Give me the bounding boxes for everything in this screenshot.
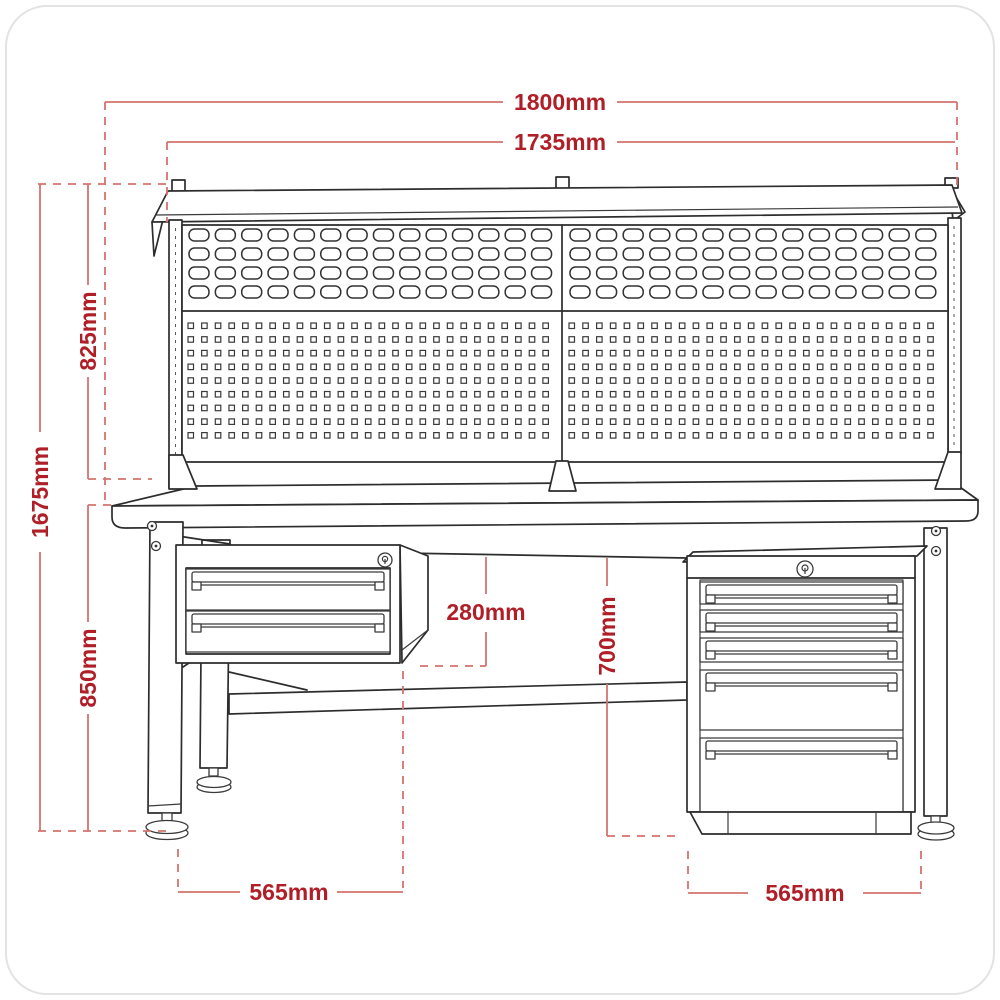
dim-overall-width-label: 1800mm — [514, 89, 606, 115]
pegboard-grid-left — [188, 323, 548, 438]
back-panels — [182, 225, 948, 462]
right-leg — [918, 528, 954, 840]
cabinet-drawers — [700, 582, 903, 812]
diagram-canvas: 1800mm 1735mm 1675mm — [0, 0, 1000, 1000]
dim-suspended-unit-height: 280mm — [420, 557, 526, 666]
lock-icon — [797, 561, 813, 577]
worktop — [112, 480, 978, 528]
dim-cabinet-width-label: 565mm — [765, 880, 844, 906]
dim-back-panel-height: 825mm — [75, 184, 152, 479]
dim-suspended-unit-height-label: 280mm — [446, 599, 525, 625]
pegboard-grid-right — [569, 323, 933, 438]
dim-cabinet-width: 565mm — [688, 851, 921, 906]
suspended-drawer-unit — [176, 545, 428, 663]
dim-overall-height: 1675mm — [27, 184, 53, 831]
suspended-unit-drawers — [186, 569, 390, 652]
left-upright-post — [169, 220, 182, 488]
dim-worktop-height: 850mm — [75, 505, 112, 831]
lower-stretcher-rail — [229, 672, 687, 714]
adjustable-foot — [918, 816, 954, 840]
dim-underbench-clearance-label: 700mm — [594, 596, 620, 675]
adjustable-foot — [197, 768, 231, 793]
workbench-drawing — [112, 177, 978, 840]
dim-back-panel-width-label: 1735mm — [514, 129, 606, 155]
cabinet-plinth — [690, 812, 911, 834]
adjustable-foot — [146, 813, 188, 840]
dim-overall-height-label: 1675mm — [27, 446, 53, 538]
workbench-dimension-diagram: 1800mm 1735mm 1675mm — [0, 0, 1000, 1000]
dim-back-panel-height-label: 825mm — [75, 291, 101, 370]
under-worktop-apron — [400, 553, 687, 558]
dim-left-footprint-label: 565mm — [249, 879, 328, 905]
drawer-cabinet — [683, 546, 927, 834]
dim-worktop-height-label: 850mm — [75, 628, 101, 707]
right-upright-post — [948, 218, 961, 454]
lock-icon — [378, 553, 392, 567]
